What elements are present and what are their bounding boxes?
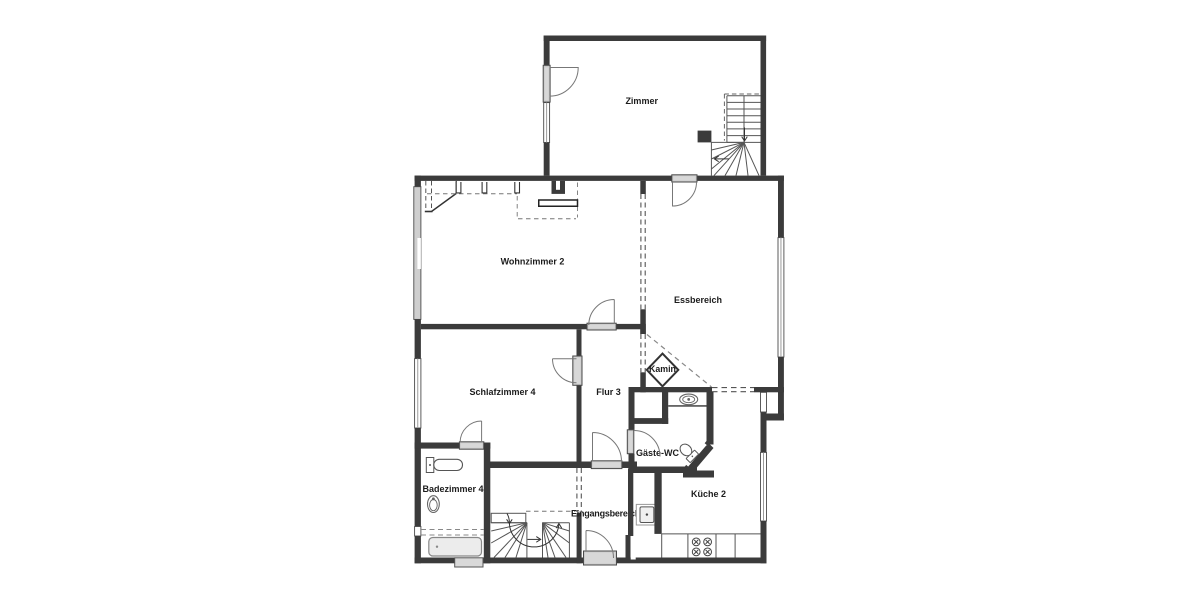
- svg-text:Wohnzimmer 2: Wohnzimmer 2: [501, 257, 565, 267]
- svg-text:Kamin: Kamin: [649, 364, 676, 374]
- svg-text:Gäste-WC: Gäste-WC: [636, 448, 680, 458]
- svg-text:Flur 3: Flur 3: [596, 387, 621, 397]
- svg-text:Zimmer: Zimmer: [625, 96, 658, 106]
- svg-text:Essbereich: Essbereich: [674, 295, 722, 305]
- svg-text:Badezimmer 4: Badezimmer 4: [422, 484, 483, 494]
- svg-text:Schlafzimmer 4: Schlafzimmer 4: [469, 387, 535, 397]
- svg-text:Küche 2: Küche 2: [691, 489, 726, 499]
